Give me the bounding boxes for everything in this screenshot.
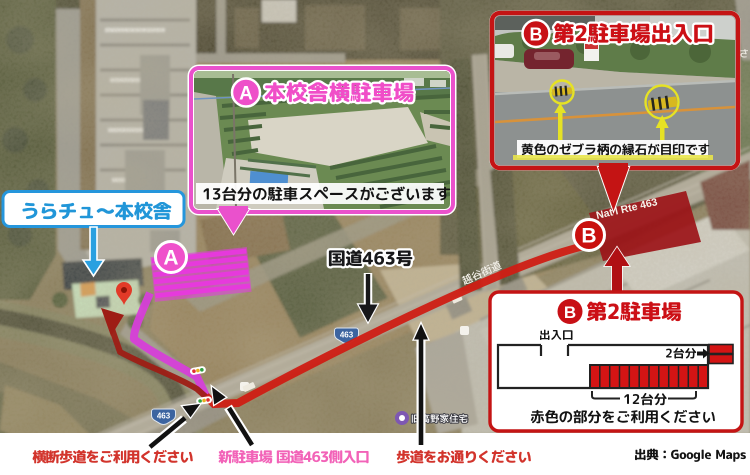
svg-text:A: A [163, 247, 178, 270]
svg-text:B: B [530, 25, 543, 45]
svg-text:463: 463 [157, 412, 171, 421]
svg-text:A: A [239, 84, 253, 105]
svg-text:B: B [581, 225, 596, 248]
svg-text:463: 463 [340, 331, 354, 340]
svg-text:B: B [564, 303, 576, 322]
